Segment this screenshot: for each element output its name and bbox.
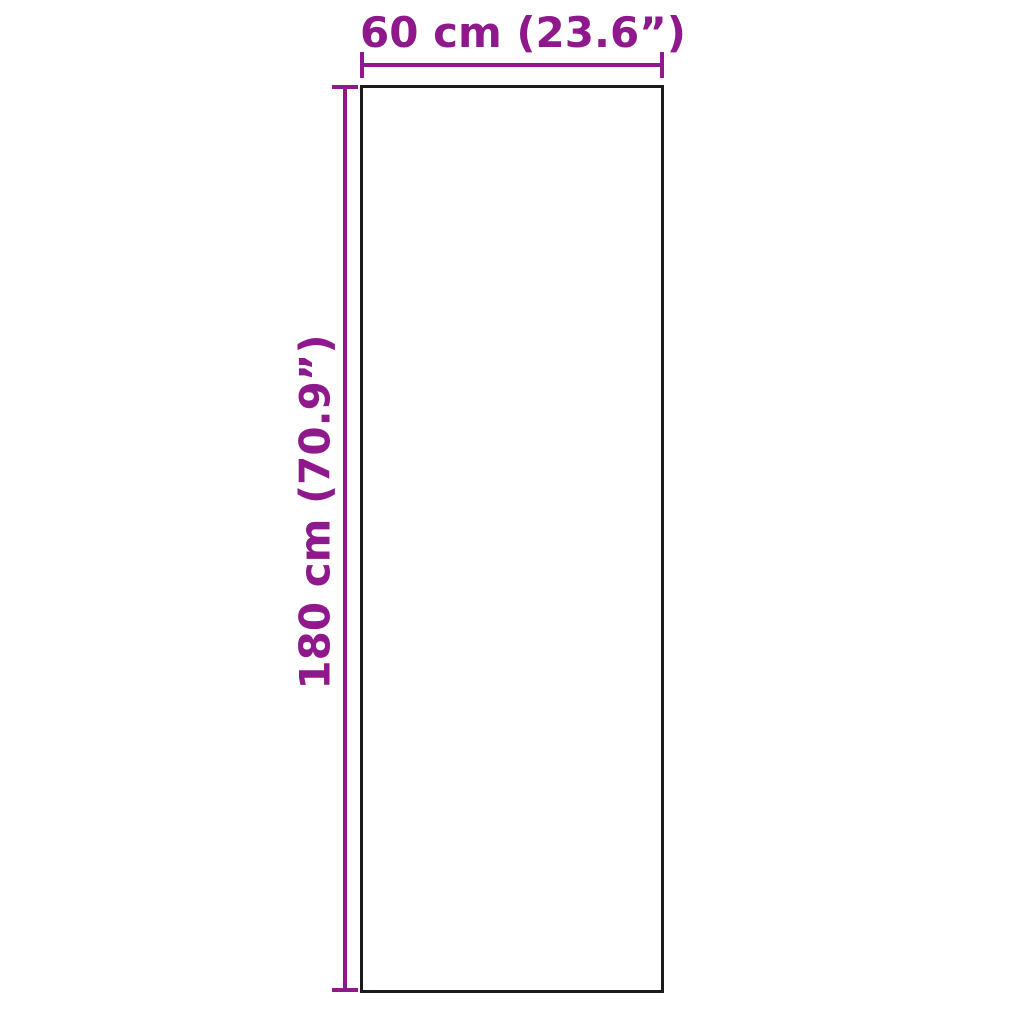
height-dimension-bottom-tick (332, 988, 358, 992)
height-dimension-label: 180 cm (70.9”) (291, 334, 340, 689)
width-dimension-line (360, 63, 664, 67)
product-outline-rectangle (360, 85, 664, 993)
dimension-diagram: 60 cm (23.6”) 180 cm (70.9”) (0, 0, 1024, 1024)
height-dimension-top-tick (332, 85, 358, 89)
height-dimension-line (343, 85, 347, 992)
width-dimension-label: 60 cm (23.6”) (360, 8, 664, 57)
